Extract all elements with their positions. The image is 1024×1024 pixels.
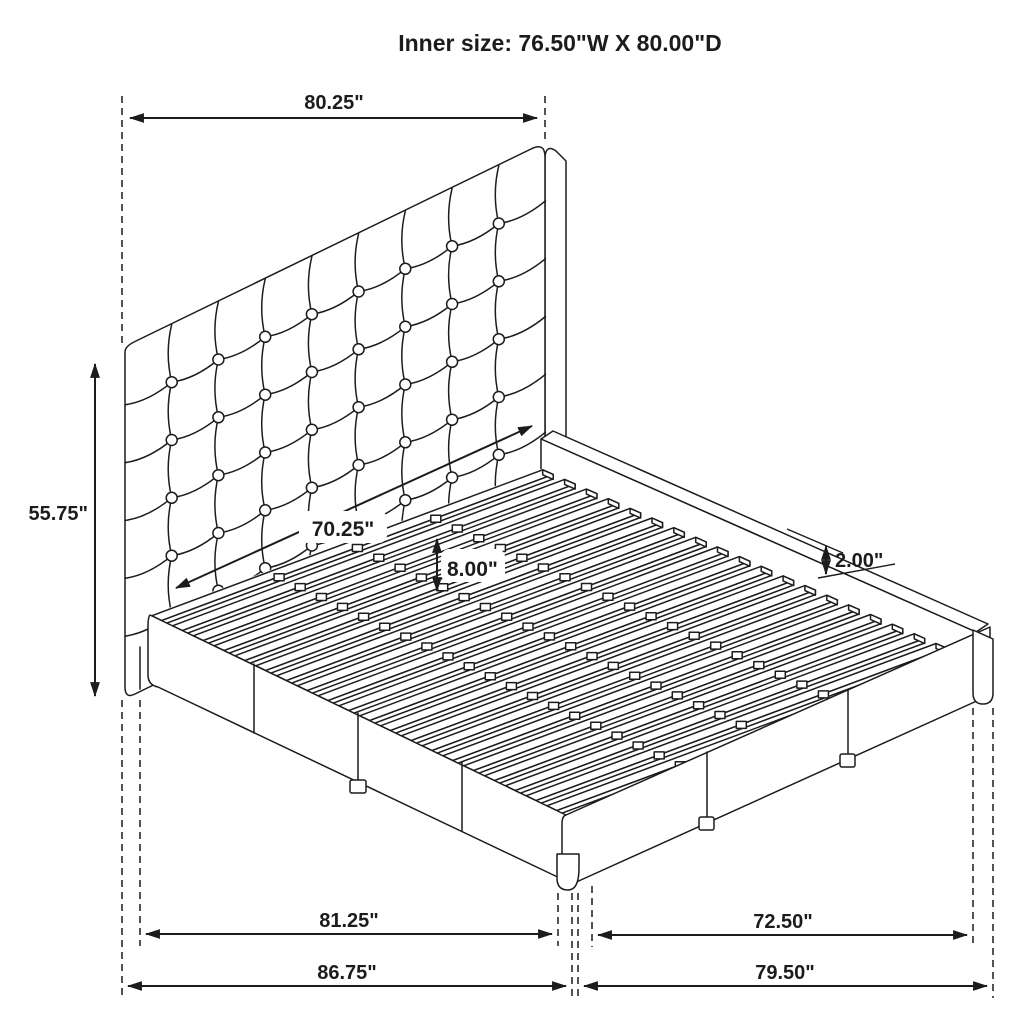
slat-clip: [517, 554, 527, 561]
slat-clip: [582, 584, 592, 591]
slat-clip: [416, 574, 426, 581]
slat-clip: [736, 721, 746, 728]
slat-clip: [485, 673, 495, 680]
bed-dimension-drawing: 80.25" 55.75" 70.25" 8.00" 2.00": [0, 0, 1024, 1024]
slat-clip: [625, 603, 635, 610]
slat-clip: [654, 752, 664, 759]
slat-clip: [480, 604, 490, 611]
slat-clip: [689, 632, 699, 639]
tuft-button: [306, 482, 317, 493]
tuft-button: [166, 435, 177, 446]
tuft-button: [400, 263, 411, 274]
slat-clip: [603, 593, 613, 600]
slat-clip: [711, 642, 721, 649]
slat-clip: [431, 515, 441, 522]
tuft-button: [493, 449, 504, 460]
tuft-button: [213, 412, 224, 423]
slat-clip: [464, 663, 474, 670]
dim-overall-width: 79.50": [584, 962, 987, 986]
tuft-button: [493, 334, 504, 345]
slat-clip: [452, 525, 462, 532]
tuft-button: [493, 392, 504, 403]
slat-clip: [422, 643, 432, 650]
tuft-button: [447, 414, 458, 425]
slat-clip: [474, 535, 484, 542]
dim-side-rail-length: 81.25": [146, 910, 552, 934]
tuft-button: [447, 299, 458, 310]
slat-clip: [352, 545, 362, 552]
front-corner-leg: [557, 854, 579, 890]
tuft-button: [353, 460, 364, 471]
right-corner-leg: [973, 630, 993, 704]
tuft-button: [166, 377, 177, 388]
dim-headboard-height-label: 55.75": [28, 503, 88, 525]
tuft-button: [447, 356, 458, 367]
slat-clip: [459, 594, 469, 601]
dim-rail-lip-height-label: 2.00": [835, 550, 883, 572]
slat-clip: [566, 643, 576, 650]
slat-clip: [401, 633, 411, 640]
tuft-button: [166, 550, 177, 561]
slat-clip: [591, 722, 601, 729]
slat-clip: [612, 732, 622, 739]
slat-clip: [549, 702, 559, 709]
tuft-button: [353, 344, 364, 355]
slat-clip: [374, 554, 384, 561]
slat-clip: [395, 564, 405, 571]
slat-clip: [502, 613, 512, 620]
slat-clip: [694, 702, 704, 709]
slat-clip: [523, 623, 533, 630]
dim-slat-area-width-label: 70.25": [312, 518, 375, 541]
slat-clip: [646, 613, 656, 620]
tuft-button: [306, 309, 317, 320]
slat-clip: [668, 623, 678, 630]
drawing-title: Inner size: 76.50"W X 80.00"D: [398, 30, 722, 56]
tuft-button: [306, 424, 317, 435]
slat-clip: [560, 574, 570, 581]
slat-clip: [633, 742, 643, 749]
tuft-button: [213, 354, 224, 365]
bed-drawing: [125, 147, 993, 890]
tuft-button: [493, 276, 504, 287]
slat-clip: [630, 672, 640, 679]
tuft-button: [213, 470, 224, 481]
tuft-button: [353, 286, 364, 297]
slat-clip: [380, 623, 390, 630]
dim-footboard-inner-width: 72.50": [598, 911, 967, 935]
dim-headboard-height: 55.75": [28, 364, 95, 696]
tuft-button: [447, 472, 458, 483]
left-rail-foot: [350, 780, 366, 793]
slat-clip: [797, 681, 807, 688]
slat-clip: [295, 584, 305, 591]
slat-clip: [818, 691, 828, 698]
dim-overall-depth: 86.75": [128, 962, 566, 986]
slat-clip: [732, 652, 742, 659]
tuft-button: [400, 437, 411, 448]
dim-headboard-width: 80.25": [130, 92, 537, 118]
dim-headboard-width-label: 80.25": [304, 92, 364, 114]
slat-clip: [587, 653, 597, 660]
slat-clip: [754, 662, 764, 669]
slat-clip: [338, 603, 348, 610]
dim-overall-width-label: 79.50": [755, 962, 815, 984]
tuft-button: [166, 492, 177, 503]
slat-clip: [443, 653, 453, 660]
slat-clip: [528, 693, 538, 700]
tuft-button: [447, 241, 458, 252]
foot-rail-foot: [840, 754, 855, 767]
tuft-button: [213, 528, 224, 539]
dim-footboard-inner-width-label: 72.50": [753, 911, 813, 933]
tuft-button: [400, 321, 411, 332]
slat-clip: [359, 613, 369, 620]
tuft-button: [260, 389, 271, 400]
dim-side-rail-length-label: 81.25": [319, 910, 379, 932]
slat-clip: [651, 682, 661, 689]
slat-clip: [274, 574, 284, 581]
diagram-page: 80.25" 55.75" 70.25" 8.00" 2.00": [0, 0, 1024, 1024]
tuft-button: [260, 331, 271, 342]
slat-clip: [570, 712, 580, 719]
slat-clip: [608, 662, 618, 669]
tuft-button: [260, 447, 271, 458]
tuft-button: [400, 379, 411, 390]
slat-clip: [775, 671, 785, 678]
slat-clip: [672, 692, 682, 699]
slat-clip: [715, 712, 725, 719]
slat-clip: [538, 564, 548, 571]
tuft-button: [260, 505, 271, 516]
dim-overall-depth-label: 86.75": [317, 962, 377, 984]
slat-clip: [544, 633, 554, 640]
tuft-button: [353, 402, 364, 413]
slat-clip: [316, 594, 326, 601]
slat-clip: [506, 683, 516, 690]
slat-clip: [438, 584, 448, 591]
tuft-button: [400, 495, 411, 506]
tuft-button: [493, 218, 504, 229]
foot-rail-foot: [699, 817, 714, 830]
tuft-button: [306, 367, 317, 378]
dim-platform-height-label: 8.00": [447, 558, 498, 581]
